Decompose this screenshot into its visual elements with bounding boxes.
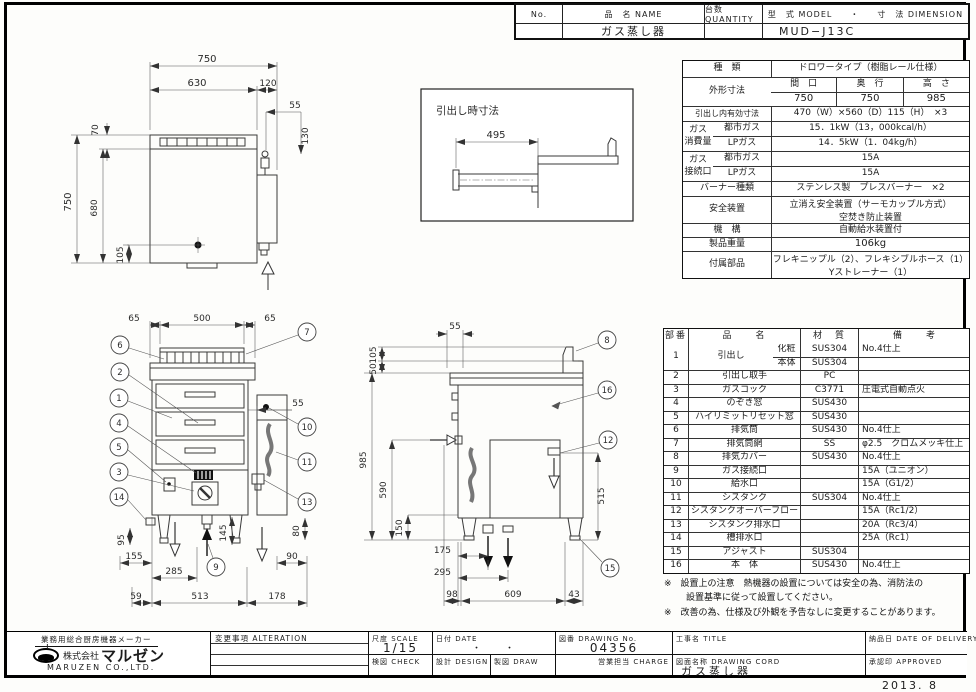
company-name-en: MARUZEN CO.,LTD. <box>47 663 155 672</box>
balloon-1: 1 <box>116 394 121 404</box>
dim-70: 70 <box>91 124 101 136</box>
design-cell: 設計 DESIGN <box>432 654 490 675</box>
detail-title: 引出し時寸法 <box>436 104 499 117</box>
dim-750-left: 750 <box>63 192 74 211</box>
drawing-name-cell: 図面名称 DRAWING CORD ガス蒸し器 <box>672 654 865 675</box>
balloon-9: 9 <box>213 563 218 573</box>
dim-55: 55 <box>289 101 300 111</box>
approved-label: 承認印 APPROVED <box>869 657 942 667</box>
dim-80: 80 <box>292 525 302 537</box>
side-water-inlet-arrow <box>430 435 456 445</box>
spec-drawer-value: 470（W）×560（D）115（H） ×3 <box>771 107 969 121</box>
table-row: 12シスタンクオーバーフロー15A（Rc1/2） <box>664 505 969 519</box>
balloon-13: 13 <box>302 498 313 508</box>
dim-43: 43 <box>568 590 579 600</box>
table-row: 15アジャストSUS304 <box>664 546 969 560</box>
dim-609: 609 <box>504 590 521 600</box>
parts-no-label: 部番 <box>664 329 688 344</box>
spec-table: 種 類 ドロワータイプ（樹脂レール仕様） 外形寸法 間 口 奥 行 高 さ 75… <box>682 60 970 279</box>
alteration-row <box>211 643 368 644</box>
dim-285: 285 <box>165 567 182 577</box>
dim-55: 55 <box>292 399 303 409</box>
balloon-16: 16 <box>602 386 613 396</box>
note-line: 設置基準に従って設置してください。 <box>664 591 970 605</box>
parts-material-label: 材 質 <box>800 329 858 344</box>
balloon-10: 10 <box>302 423 313 433</box>
drawer-handle <box>185 392 215 397</box>
maruzen-logo-icon <box>33 648 59 663</box>
header-name-value: ガス蒸し器 <box>562 23 704 39</box>
spec-height-value: 985 <box>903 93 969 107</box>
dim-59: 59 <box>130 592 142 602</box>
table-row: 16本 体SUS430No.4仕上 <box>664 559 969 573</box>
dim-105: 105 <box>116 246 126 263</box>
scale-cell: 尺度 SCALE 1/15 <box>368 632 432 654</box>
company-prefix: 株式会社 <box>63 649 99 662</box>
spec-burner-label: バーナー種類 <box>683 182 771 196</box>
balloon-14: 14 <box>114 493 125 503</box>
side-flexible-hose <box>470 448 475 502</box>
side-overflow-fitting <box>548 448 560 455</box>
header-table: No. 品 名 NAME 台数 QUANTITY 型 式 MODEL ・ 寸 法… <box>514 3 970 40</box>
drawing-no-value: 04356 <box>556 641 672 655</box>
spec-lp-gas-label: LPガス <box>713 137 771 151</box>
parts-note-label: 備 考 <box>858 329 969 344</box>
dim-985: 985 <box>359 451 369 468</box>
table-row: 9ガス接続口15A（ユニオン） <box>664 465 969 479</box>
date-value: ・ ・ <box>433 641 555 654</box>
note-line: ※ 設置上の注意 熱機器の設置については安全の為、消防法の <box>664 577 970 591</box>
balloon-4: 4 <box>116 419 121 429</box>
table-row: 5ハイリミットリセット窓SUS430 <box>664 411 969 425</box>
dim-295: 295 <box>434 568 451 578</box>
dim-50: 50 <box>369 363 379 375</box>
front-drawer-1 <box>156 384 244 408</box>
side-view-drawing: 55 105 50 985 590 150 515 175 295 98 609… <box>352 298 667 633</box>
spec-outer-label: 外形寸法 <box>683 78 771 106</box>
table-row: 4のぞき窓SUS430 <box>664 397 969 411</box>
dim-120: 120 <box>259 79 276 89</box>
dim-105: 105 <box>369 346 379 363</box>
table-row: 14槽排水口25A（Rc1） <box>664 532 969 546</box>
spec-accessory-value2: Yストレーナー（1） <box>829 265 912 278</box>
dim-130: 130 <box>301 127 311 144</box>
dim-150: 150 <box>395 519 405 536</box>
table-row: 8排気カバーSUS430No.4仕上 <box>664 451 969 465</box>
note-line: ※ 改善の為、仕様及び外観を予告なしに変更することがあります。 <box>664 606 970 620</box>
spec-conn-lp-label: LPガス <box>713 167 771 181</box>
dim-630: 630 <box>187 78 206 89</box>
spec-height-label: 高 さ <box>903 78 969 92</box>
front-drawer-3 <box>156 440 244 464</box>
header-no-label: No. <box>516 5 562 23</box>
balloon-11: 11 <box>302 458 313 468</box>
balloon-7: 7 <box>304 328 309 338</box>
date-cell: 日付 DATE ・ ・ <box>432 632 555 654</box>
issue-date: 2013. 8 <box>855 679 965 692</box>
side-cistern-tank <box>490 440 560 518</box>
spec-width-value: 750 <box>771 93 836 107</box>
dim-65-left: 65 <box>128 314 139 324</box>
balloon-3: 3 <box>116 468 121 478</box>
spec-accessory-value1: フレキニップル（2）、フレキシブルホース（1） <box>773 252 969 265</box>
dim-65-right: 65 <box>264 314 275 324</box>
side-drain-arrow <box>503 538 513 568</box>
front-left-drain <box>146 518 155 525</box>
side-exhaust-stack <box>563 347 583 373</box>
plan-view-drawing: 750 630 120 55 70 750 680 105 130 <box>55 50 375 300</box>
spec-city-gas-label: 都市ガス <box>713 122 771 136</box>
table-row: 2引出し取手PC <box>664 370 969 384</box>
scale-value: 1/15 <box>369 641 432 655</box>
title-cell: 工事名 TITLE <box>672 632 865 654</box>
table-row: 13シスタンク排水口20A（Rc3/4） <box>664 519 969 533</box>
drawer-handle <box>185 448 215 453</box>
front-water-inlet-box <box>257 395 287 420</box>
spec-gas-use-label: ガス消費量 <box>683 122 713 151</box>
drawing-no-cell: 図番 DRAWING No. 04356 <box>555 632 672 654</box>
balloon-12: 12 <box>603 436 614 446</box>
table-row: 1引出し化粧SUS304No.4仕上本体SUS304 <box>664 344 969 370</box>
balloon-2: 2 <box>117 368 122 378</box>
table-row: 7排気筒網SSφ2.5 クロムメッキ仕上 <box>664 438 969 452</box>
approved-cell: 承認印 APPROVED <box>865 654 967 675</box>
side-leg <box>462 518 476 536</box>
spec-conn-city-value: 15A <box>771 152 969 166</box>
header-qty-label: 台数 QUANTITY <box>704 5 762 23</box>
spec-depth-label: 奥 行 <box>836 78 902 92</box>
check-cell: 検図 CHECK <box>368 654 432 675</box>
dim-680: 680 <box>90 199 100 216</box>
alteration-row <box>211 665 368 666</box>
dim-590: 590 <box>379 481 389 498</box>
spec-safety-value1: 立消え安全装置（サーモカップル方式） <box>789 197 951 210</box>
notes: ※ 設置上の注意 熱機器の設置については安全の為、消防法の 設置基準に従って設置… <box>664 577 970 620</box>
front-leg <box>158 515 170 538</box>
parts-name-label: 品 名 <box>688 329 800 344</box>
spec-kind-value: ドロワータイプ（樹脂レール仕様） <box>771 61 969 77</box>
table-row: 6排気筒SUS430No.4仕上 <box>664 424 969 438</box>
balloon-8: 8 <box>604 336 609 346</box>
plan-side-unit <box>257 175 277 243</box>
table-row: 11シスタンクSUS304No.4仕上 <box>664 492 969 506</box>
spec-lp-gas-value: 14．5kW（1．04kg/h） <box>771 137 969 151</box>
dim-155: 155 <box>125 552 142 562</box>
front-drain-arrow <box>257 527 267 561</box>
delivery-cell: 納品日 DATE OF DELIVERY <box>865 632 967 654</box>
spec-mech-value: 自動給水装置付 <box>771 224 969 237</box>
spec-kind-label: 種 類 <box>683 61 771 77</box>
check-label: 検図 CHECK <box>372 657 420 667</box>
spec-mech-label: 機 構 <box>683 224 771 237</box>
table-row: 3ガスコックC3771圧電式自動点火 <box>664 384 969 398</box>
drawer-handle <box>185 420 215 425</box>
dim-500: 500 <box>193 314 210 324</box>
draw-label: 製図 DRAW <box>494 657 539 667</box>
spec-city-gas-value: 15．1kW（13，000kcal/h） <box>771 122 969 136</box>
side-overflow-arrow <box>549 458 559 488</box>
front-view-drawing: 65 500 65 55 95 155 145 80 90 285 59 513… <box>80 312 330 642</box>
charge-label: 営業担当 CHARGE <box>598 657 669 667</box>
spec-safety-label: 安全装置 <box>683 197 771 223</box>
header-no-value <box>516 23 562 39</box>
design-label: 設計 DESIGN <box>436 657 488 667</box>
plan-drawer-slot <box>160 138 245 146</box>
charge-cell: 営業担当 CHARGE <box>555 654 672 675</box>
dim-513: 513 <box>191 592 208 602</box>
spec-weight-value: 106kg <box>771 238 969 251</box>
spec-conn-lp-value: 15A <box>771 167 969 181</box>
plan-body <box>150 135 257 263</box>
spec-weight-label: 製品重量 <box>683 238 771 251</box>
dim-90: 90 <box>286 552 298 562</box>
header-qty-value <box>704 23 762 39</box>
balloon-15: 15 <box>605 564 616 574</box>
spec-depth-value: 750 <box>836 93 902 107</box>
header-model-value: MUD−J13C <box>762 23 968 39</box>
side-tabletop <box>450 373 583 385</box>
spec-drawer-label: 引出し内有効寸法 <box>683 107 771 121</box>
table-row: 10給水口15A（G1/2） <box>664 478 969 492</box>
spec-gas-conn-label: ガス接続口 <box>683 152 713 181</box>
detail-view-drawing: 引出し時寸法 495 <box>420 88 635 223</box>
side-leg <box>568 518 582 536</box>
dim-145: 145 <box>219 524 229 541</box>
front-side-tank <box>257 420 287 515</box>
front-drain-valve <box>252 474 264 484</box>
header-model-label: 型 式 MODEL ・ 寸 法 DIMENSION <box>762 5 968 23</box>
front-drain-arrow <box>170 522 180 556</box>
dim-55: 55 <box>449 322 460 332</box>
drawing-name-value: ガス蒸し器 <box>681 663 751 679</box>
dim-750-top: 750 <box>197 54 216 65</box>
dim-515: 515 <box>597 487 607 504</box>
spec-safety-value2: 空焚き防止装置 <box>839 210 902 223</box>
spec-burner-value: ステンレス製 プレスバーナー ×2 <box>771 182 969 196</box>
balloon-5: 5 <box>116 443 121 453</box>
dim-95: 95 <box>117 534 127 545</box>
front-flexible-hose <box>267 424 272 476</box>
dim-98: 98 <box>446 590 458 600</box>
drawing-sheet: No. 品 名 NAME 台数 QUANTITY 型 式 MODEL ・ 寸 法… <box>0 0 976 692</box>
dim-495: 495 <box>486 130 505 141</box>
dim-178: 178 <box>268 592 285 602</box>
alteration-row <box>211 654 368 655</box>
delivery-label: 納品日 DATE OF DELIVERY <box>869 634 976 644</box>
title-label: 工事名 TITLE <box>676 634 727 644</box>
balloon-6: 6 <box>117 341 122 351</box>
header-name-label: 品 名 NAME <box>562 5 704 23</box>
plan-gas-arrow <box>262 262 274 290</box>
spec-accessory-label: 付属部品 <box>683 252 771 278</box>
spec-conn-city-label: 都市ガス <box>713 152 771 166</box>
dim-175: 175 <box>434 546 451 556</box>
draw-cell: 製図 DRAW <box>490 654 555 675</box>
front-drawer-2 <box>156 412 244 436</box>
spec-width-label: 間 口 <box>771 78 836 92</box>
parts-table: 部番 品 名 材 質 備 考 1引出し化粧SUS304No.4仕上本体SUS30… <box>663 328 970 574</box>
front-tabletop <box>150 363 255 380</box>
